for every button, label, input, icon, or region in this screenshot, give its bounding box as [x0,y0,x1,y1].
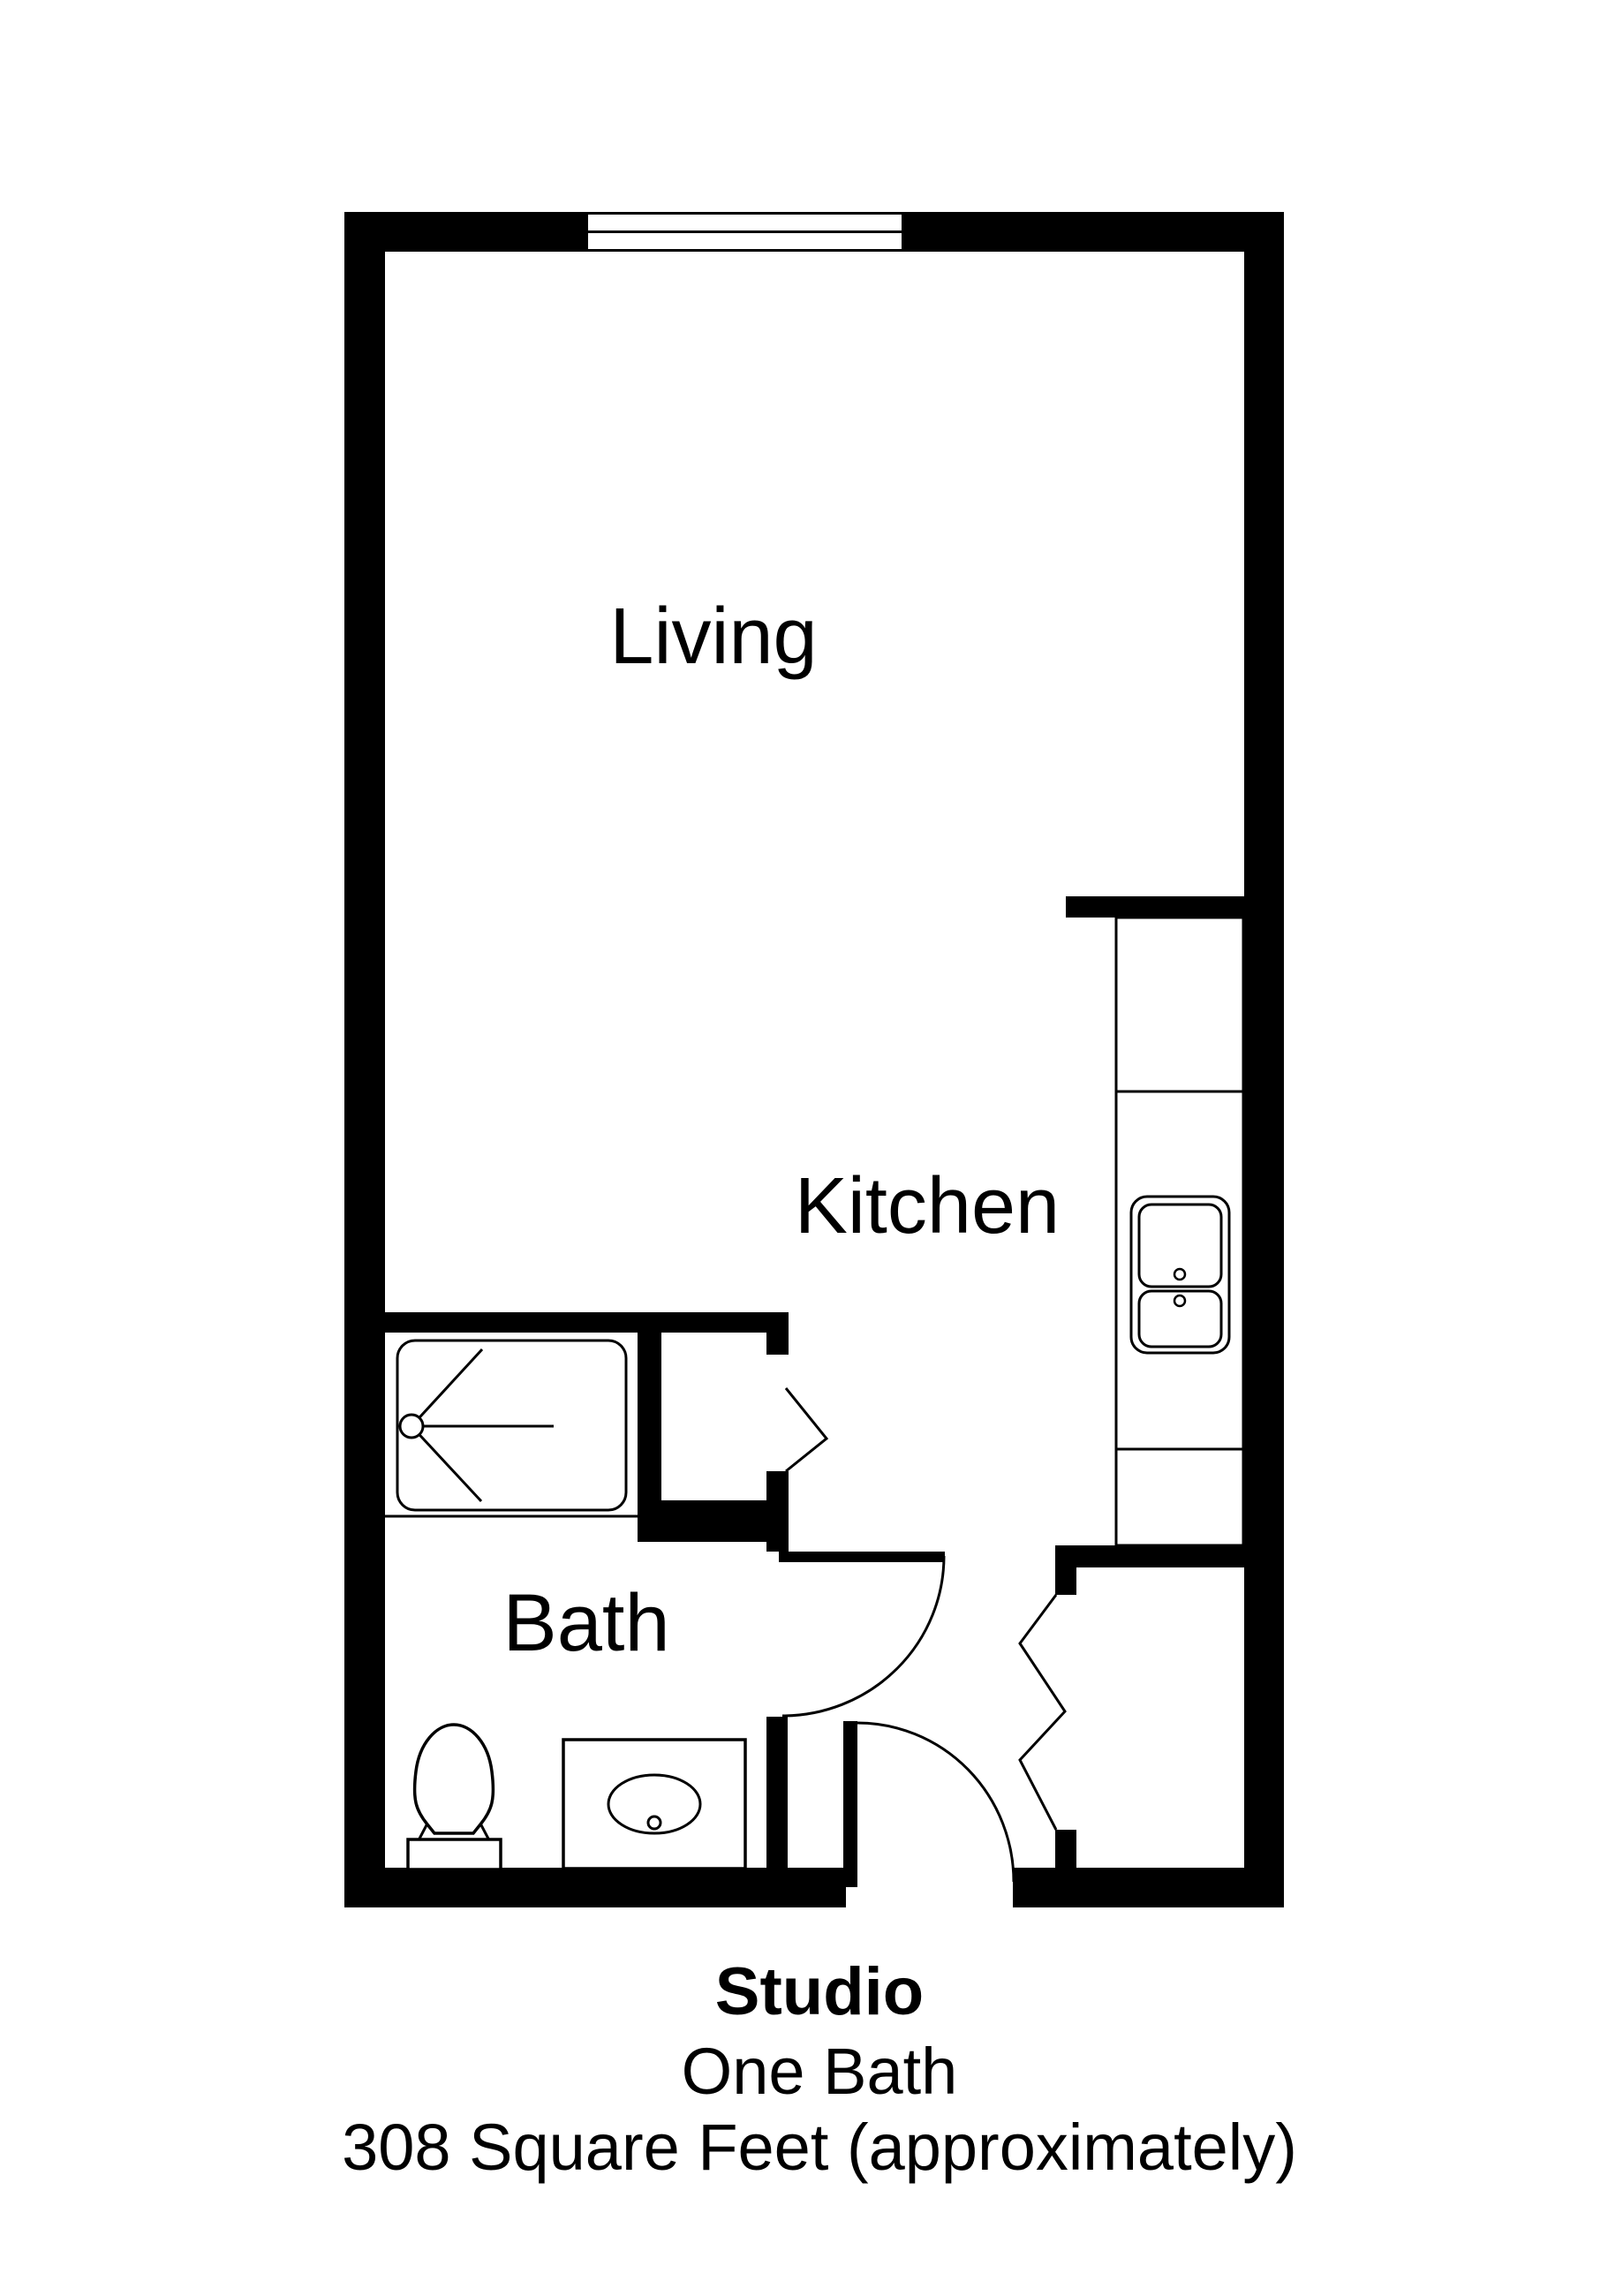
svg-text:One Bath: One Bath [682,2035,958,2108]
svg-text:Kitchen: Kitchen [795,1162,1060,1250]
svg-text:Bath: Bath [502,1578,669,1668]
svg-text:Living: Living [609,593,817,681]
svg-text:308 Square Feet (approximately: 308 Square Feet (approximately) [342,2111,1297,2184]
svg-text:Studio: Studio [715,1954,924,2029]
